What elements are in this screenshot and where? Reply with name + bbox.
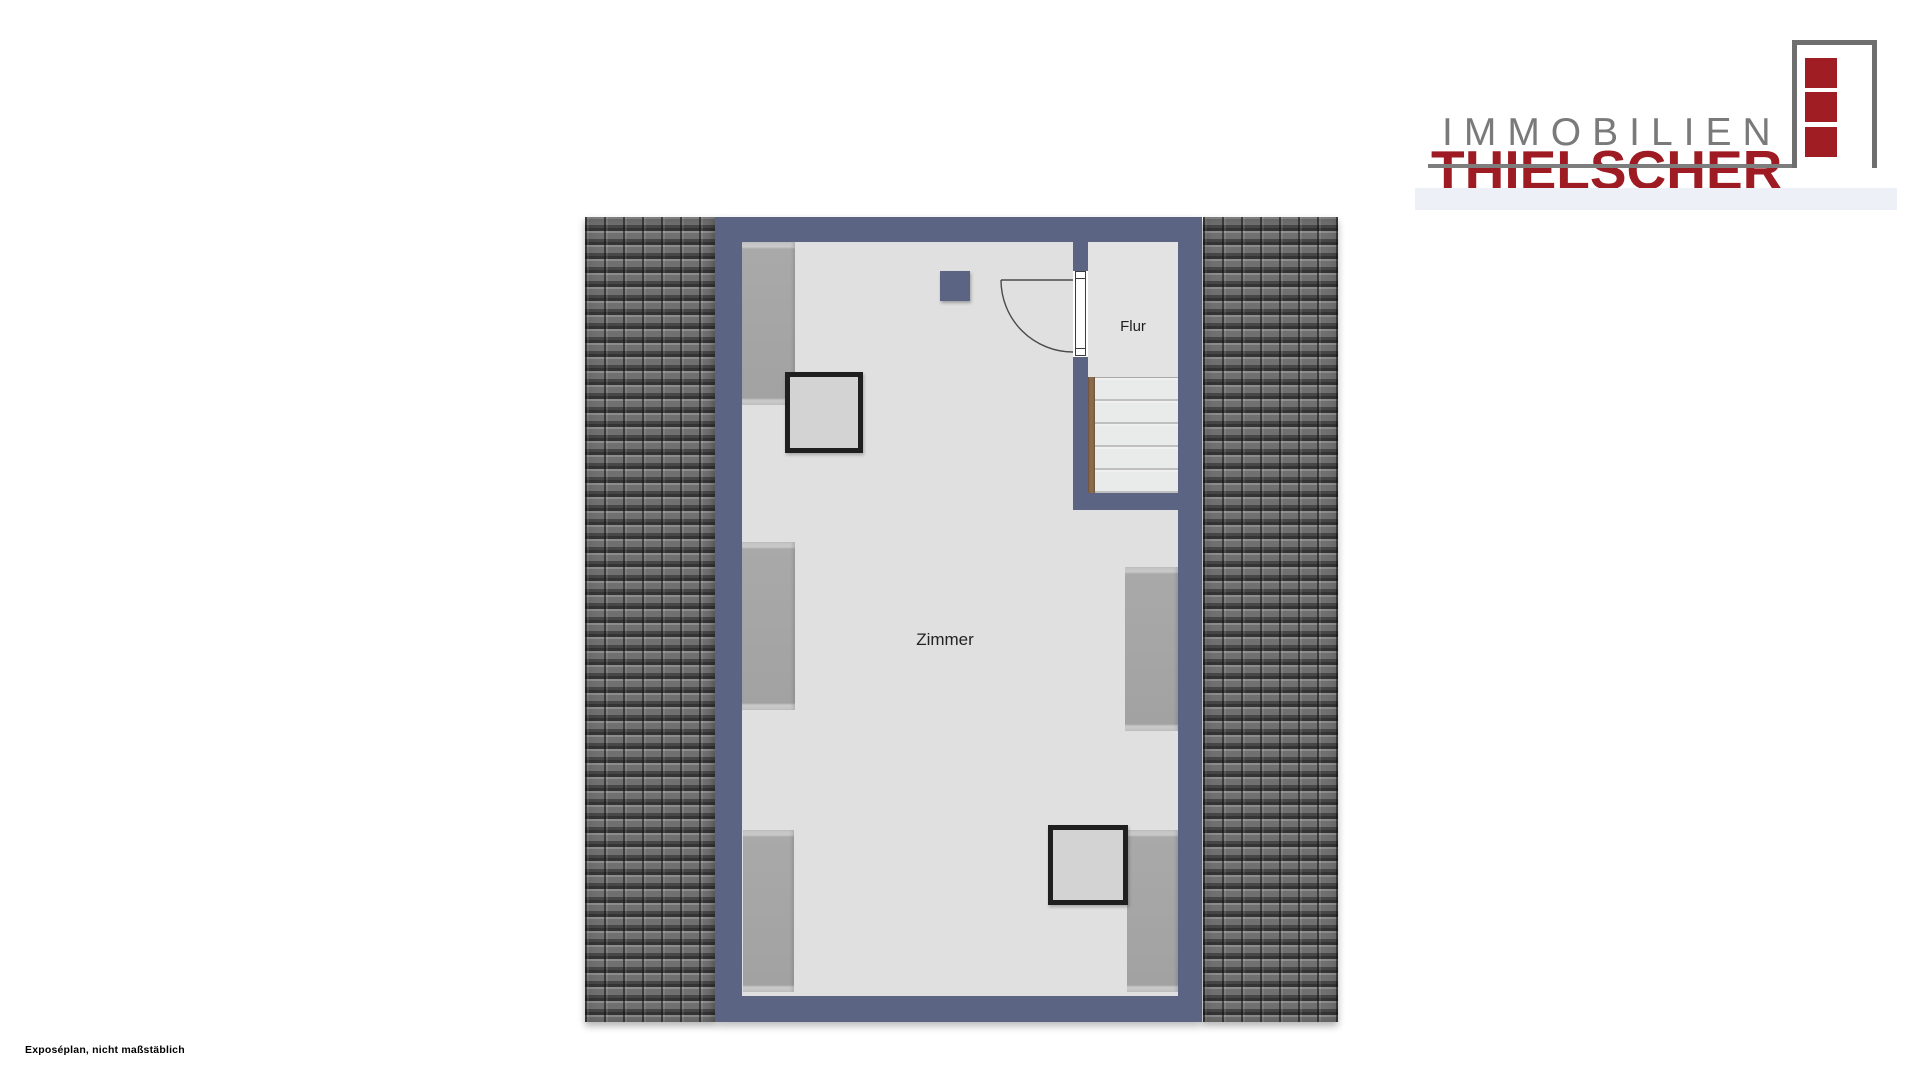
room-label-flur: Flur: [1088, 318, 1178, 335]
furniture-table: [1048, 825, 1128, 905]
furniture-cabinet: [742, 542, 795, 710]
exposeplan-page: IMMOBILIEN THIELSCHER Zimmer: [0, 0, 1920, 1080]
furniture-cabinet: [1127, 830, 1178, 992]
company-logo: IMMOBILIEN THIELSCHER: [1415, 28, 1897, 213]
stair-stringer: [1088, 377, 1095, 493]
roof-tiles-left: [585, 217, 715, 1022]
stair-treads: [1095, 377, 1178, 493]
logo-accent-band: [1415, 188, 1897, 210]
door-jamb: [1075, 348, 1086, 356]
logo-red-square: [1805, 58, 1837, 88]
roof-tiles-right: [1203, 217, 1338, 1022]
disclaimer-text: Exposéplan, nicht maßstäblich: [25, 1044, 185, 1056]
room-flur: Flur: [1088, 242, 1178, 377]
door-jamb: [1075, 271, 1086, 279]
stair-enclosure-wall: [1073, 493, 1178, 510]
logo-red-square: [1805, 127, 1837, 157]
logo-underline: [1428, 164, 1797, 168]
furniture-cabinet: [1125, 567, 1178, 731]
door-leaf: [1075, 271, 1086, 356]
chimney-block: [940, 271, 970, 301]
room-label-zimmer: Zimmer: [895, 630, 995, 650]
furniture-table: [785, 372, 863, 453]
logo-red-square: [1805, 92, 1837, 122]
stairs: [1088, 377, 1178, 493]
logo-building-icon: [1792, 40, 1877, 168]
building-walls: Zimmer Flur: [715, 217, 1202, 1022]
furniture-cabinet: [743, 830, 794, 992]
